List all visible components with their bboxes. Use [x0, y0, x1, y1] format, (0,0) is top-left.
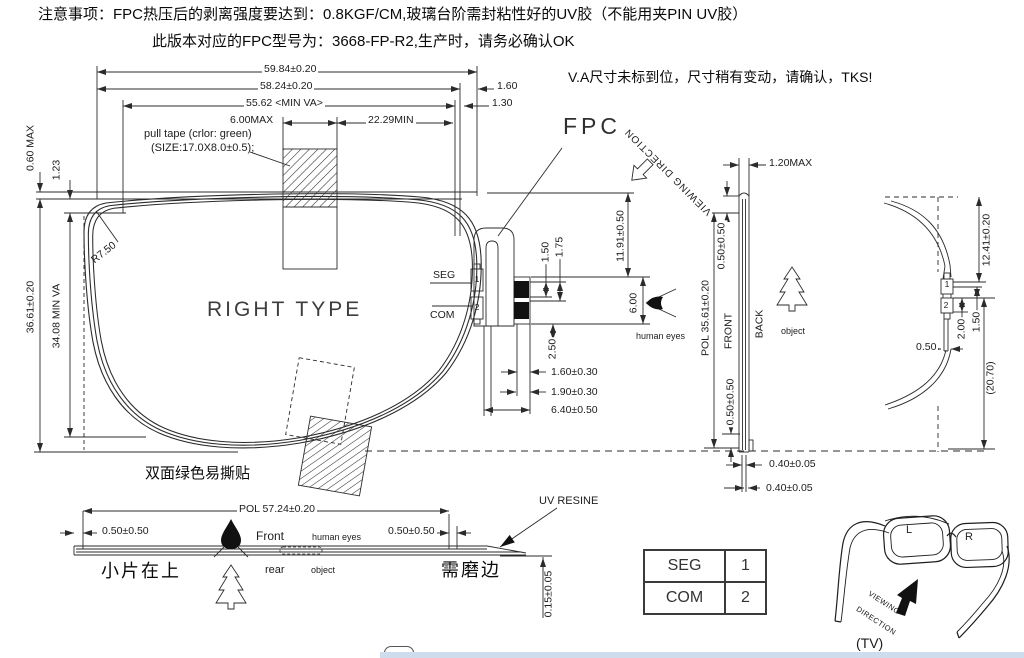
profile-dim-pad-gap: 1.50 — [971, 310, 982, 334]
lens-type-title: RIGHT TYPE — [207, 299, 362, 321]
dim-tape-offset: 6.00MAX — [228, 115, 275, 126]
bottom-human-eyes: human eyes — [312, 533, 361, 542]
bottom-rear-label: rear — [265, 565, 285, 577]
com-label: COM — [430, 310, 455, 321]
side-dim-pol-height: POL 35.61±0.20 — [700, 278, 711, 358]
pin-table-seg-label: SEG — [644, 550, 725, 582]
fpc-dim-pad-h: 6.00 — [628, 291, 639, 315]
pull-tape-note2: (SIZE:17.0X8.0±0.5); — [151, 143, 254, 155]
dim-tape-to-edge: 22.29MIN — [366, 115, 416, 126]
uv-resin-label: UV RESINE — [539, 496, 598, 508]
sticker-note: 双面绿色易撕贴 — [145, 466, 250, 482]
seg-label: SEG — [433, 270, 455, 281]
glass-pad-2: 2 — [472, 303, 482, 312]
human-eyes-label: human eyes — [636, 332, 685, 341]
dim-height-left-2: 1.23 — [51, 158, 62, 182]
bottom-note-right: 需磨边 — [441, 561, 501, 580]
fpc-dim-b1: 1.60±0.30 — [551, 367, 598, 378]
side-dim-top-gap: 0.50±0.50 — [716, 221, 727, 272]
tree-icon-bottom — [216, 565, 246, 609]
side-dim-glass-2: 0.40±0.05 — [766, 483, 813, 494]
glasses-sketch — [835, 515, 1009, 638]
fpc-dim-b2: 1.90±0.30 — [551, 387, 598, 398]
bottom-object-label: object — [311, 566, 335, 575]
bottom-dim-right: 0.50±0.50 — [386, 526, 437, 537]
fpc-dim-length: 11.91±0.50 — [615, 208, 626, 264]
tree-icon — [777, 267, 807, 311]
fpc-label: FPC — [563, 114, 621, 138]
note-line2: 此版本对应的FPC型号为：3668-FP-R2,生产时，请务必确认OK — [152, 34, 575, 50]
fpc-dim-pad-w1: 1.50 — [540, 240, 551, 264]
pin-table-com-value: 2 — [725, 582, 766, 614]
glasses-right-lens-label: R — [965, 532, 973, 544]
bottom-dim-pol-width: POL 57.24±0.20 — [237, 504, 317, 515]
fpc-dim-pad-w2: 1.75 — [554, 235, 565, 259]
note-line1: 注意事项：FPC热压后的剥离强度要达到：0.8KGF/CM,玻璃台阶需封粘性好的… — [38, 7, 747, 23]
fpc-dim-b3: 6.40±0.50 — [551, 405, 598, 416]
dim-width-outer: 59.84±0.20 — [262, 64, 318, 75]
side-front-label: FRONT — [723, 313, 734, 349]
dim-height-left-1: 0.60 MAX — [25, 123, 36, 173]
profile-dim-total: (20.70) — [985, 361, 996, 394]
glasses-left-lens-label: L — [906, 525, 912, 537]
tv-label: (TV) — [856, 636, 883, 651]
bottom-taskbar-strip — [380, 652, 1024, 658]
side-view-linework — [625, 155, 807, 492]
bottom-dim-left: 0.50±0.50 — [100, 526, 151, 537]
drop-icon — [221, 519, 241, 549]
dim-right-1: 1.60 — [497, 81, 517, 92]
profile-pad-1: 1 — [942, 280, 952, 289]
pin-table: SEG 1 COM 2 — [643, 549, 767, 615]
side-dim-thickness: 1.20MAX — [769, 158, 812, 169]
dim-width-pol: 58.24±0.20 — [258, 81, 314, 92]
bottom-note-left: 小片在上 — [101, 562, 181, 581]
fpc-dim-tail: 2.50 — [547, 337, 558, 361]
dim-height-outer: 36.61±0.20 — [25, 279, 36, 335]
glass-pad-1: 1 — [472, 275, 482, 284]
object-label: object — [781, 327, 805, 336]
dim-height-va: 34.08 MIN VA — [51, 282, 62, 351]
pin-table-seg-value: 1 — [725, 550, 766, 582]
pull-tape-note1: pull tape (crlor: green) — [144, 129, 252, 141]
profile-dim-tail-w: 0.50 — [914, 342, 938, 353]
side-dim-glass-1: 0.40±0.05 — [769, 459, 816, 470]
profile-dim-top: 12.41±0.20 — [981, 212, 992, 268]
dim-width-va: 55.62 <MIN VA> — [244, 98, 325, 109]
engineering-drawing-canvas: 注意事项：FPC热压后的剥离强度要达到：0.8KGF/CM,玻璃台阶需封粘性好的… — [0, 0, 1024, 658]
pin-table-com-label: COM — [644, 582, 725, 614]
bottom-dim-thickness: 0.15±0.05 — [543, 569, 554, 620]
profile-pad-2: 2 — [941, 301, 951, 310]
dim-right-2: 1.30 — [492, 98, 512, 109]
note-va: V.A尺寸未标到位，尺寸稍有变动，请确认，TKS! — [568, 70, 872, 85]
profile-dim-pad-pitch: 2.00 — [956, 317, 967, 341]
side-dim-bottom-gap: 0.50±0.50 — [725, 377, 736, 428]
side-back-label: BACK — [754, 310, 765, 339]
bottom-front-label: Front — [256, 530, 284, 543]
